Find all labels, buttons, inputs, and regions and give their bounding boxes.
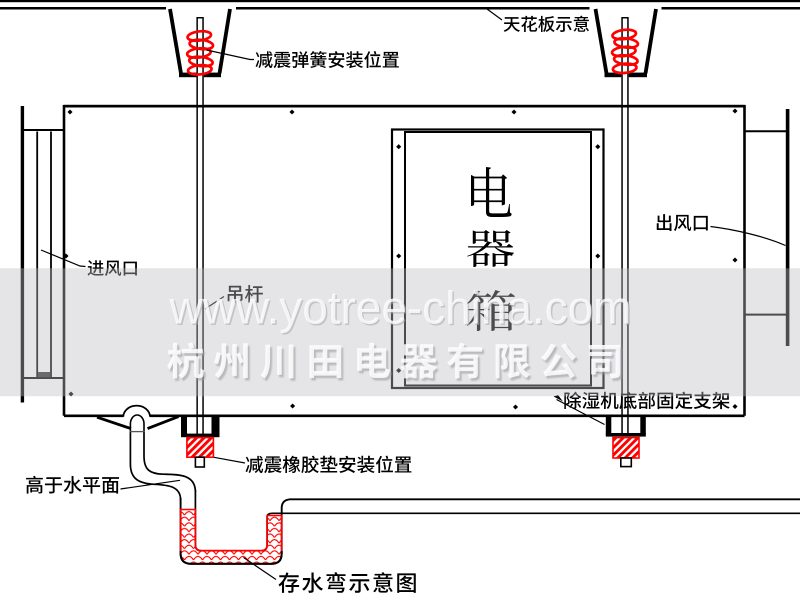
svg-text:www.yotree-china.com: www.yotree-china.com: [169, 282, 632, 334]
